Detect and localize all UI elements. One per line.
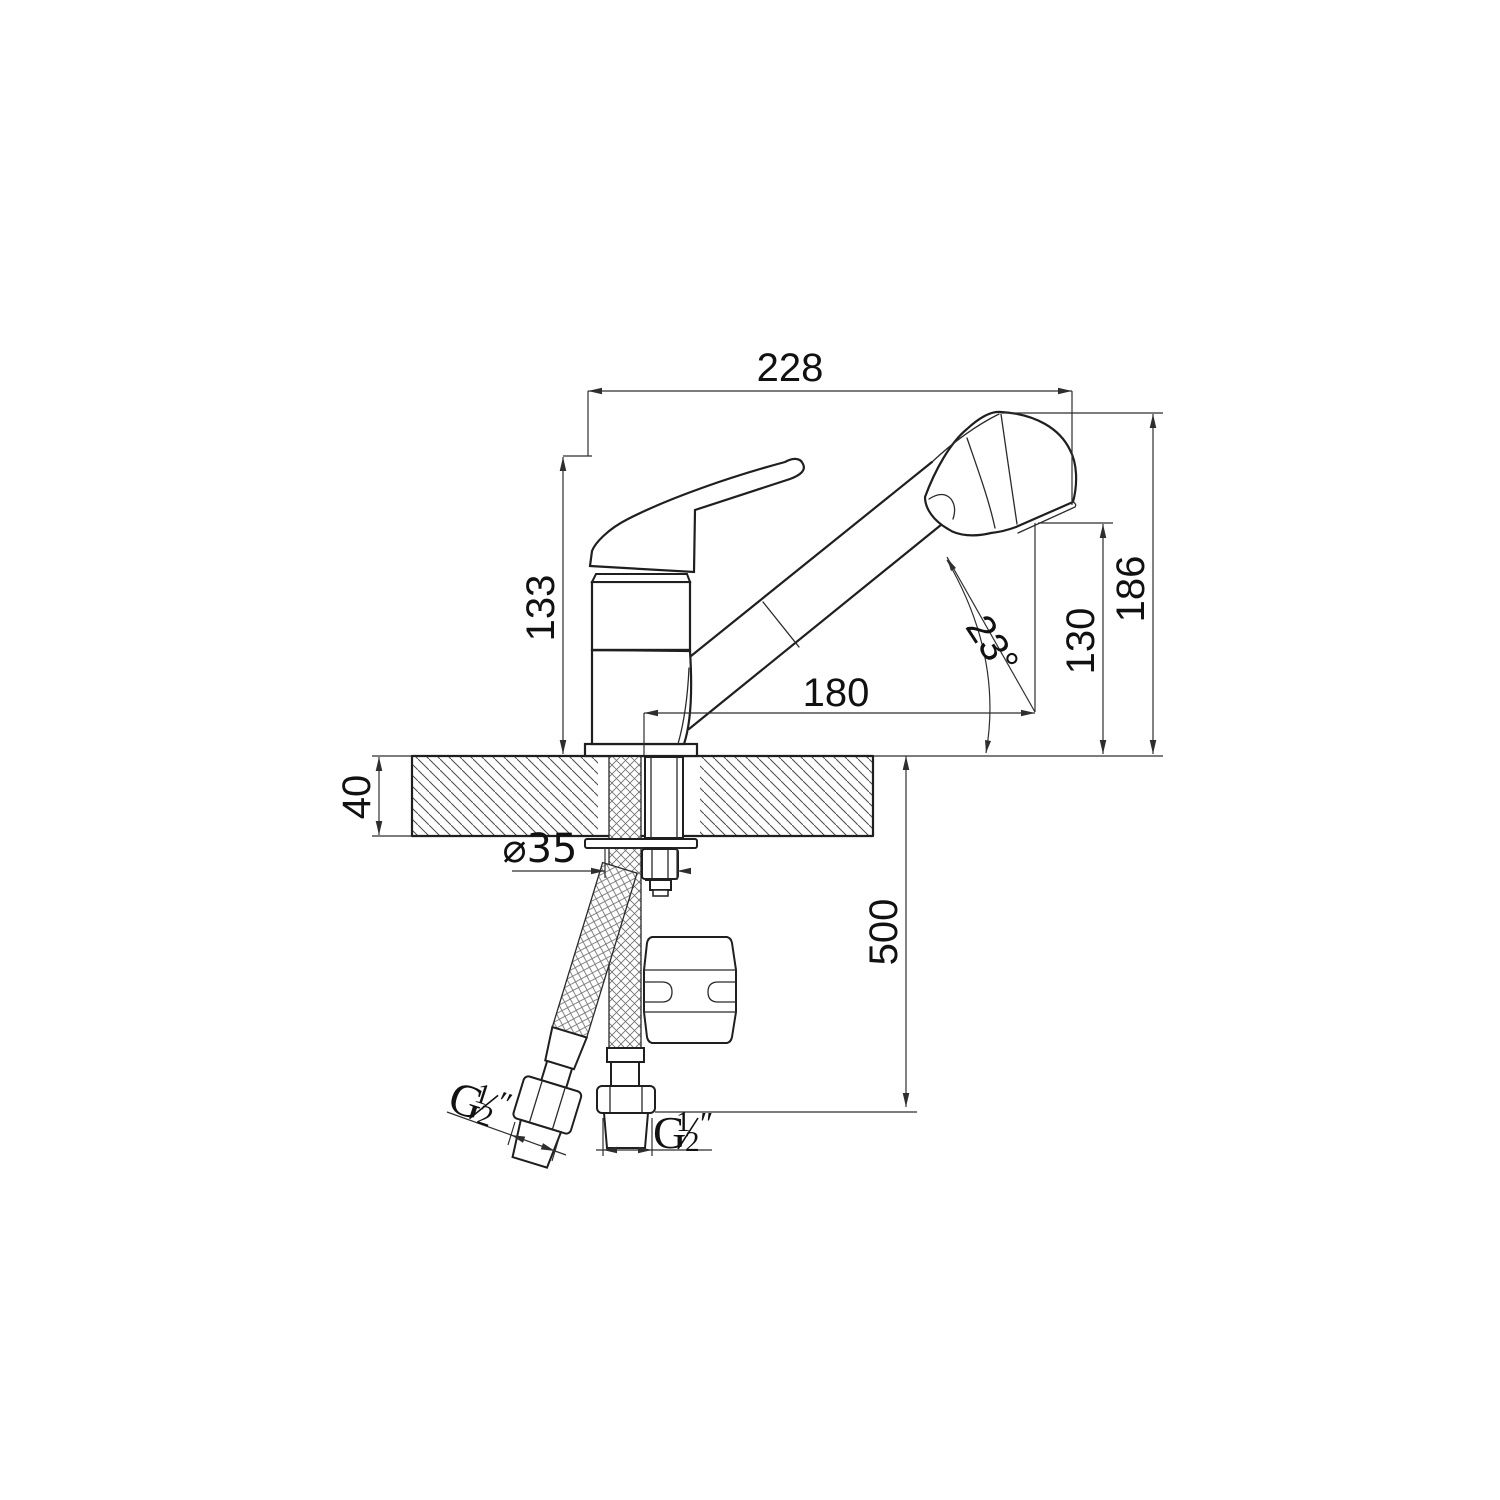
base-flange — [585, 744, 697, 756]
dim-label-d35: ⌀35 — [503, 826, 578, 872]
countertop-section — [372, 756, 1163, 836]
washer-plate — [585, 839, 697, 848]
dim-label-228: 228 — [757, 346, 824, 390]
dim-label-180: 180 — [803, 671, 870, 715]
hose-hex-nut — [597, 1086, 655, 1113]
hose-neck — [611, 1062, 639, 1086]
countertop-hatch-left — [412, 756, 598, 836]
vertical-hose-fittings — [597, 1048, 655, 1148]
hose-outlet — [604, 1113, 648, 1148]
stud-tip — [653, 890, 668, 896]
dim-outlet-height: 130 — [1038, 523, 1113, 754]
countertop-hatch-right — [700, 756, 873, 836]
mounting-nut — [642, 849, 678, 879]
faucet-body — [592, 582, 691, 744]
svg-text:2: 2 — [685, 1126, 700, 1158]
angle-arrow-top — [947, 558, 956, 571]
mounting-stud-nut — [642, 848, 678, 896]
dim-label-186: 186 — [1109, 556, 1153, 623]
cap-ring — [592, 574, 690, 582]
tube-seam — [763, 602, 799, 647]
dim-label-40: 40 — [335, 775, 379, 820]
dim-label-133: 133 — [519, 575, 563, 642]
dim-label-23deg: 23° — [957, 608, 1027, 683]
dim-body-height: 133 — [519, 456, 592, 754]
pullout-spray-head — [925, 412, 1076, 535]
counterweight — [644, 937, 736, 1043]
dim-label-500: 500 — [862, 899, 906, 966]
thread-label-angled: G 1 2 ″ — [443, 1069, 517, 1138]
threaded-shank — [645, 757, 683, 838]
hose-collar — [607, 1048, 644, 1062]
faucet-technical-drawing: 228 133 186 130 180 23° 40 — [0, 0, 1500, 1500]
dim-spray-angle: 23° — [947, 557, 1035, 753]
lever-handle — [590, 459, 804, 572]
technical-drawing-page: 228 133 186 130 180 23° 40 — [0, 0, 1500, 1500]
svg-text:″: ″ — [700, 1105, 713, 1141]
angle-arrow-bottom — [985, 740, 991, 753]
dim-label-130: 130 — [1059, 608, 1103, 675]
dim-deck-thickness: 40 — [335, 757, 379, 835]
